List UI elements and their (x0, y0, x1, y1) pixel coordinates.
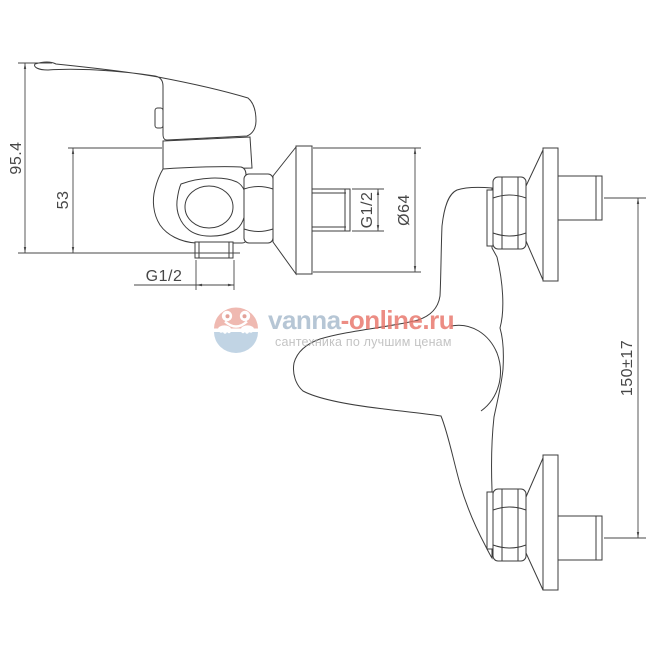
side-escutcheon (273, 146, 312, 274)
front-top-connection (487, 148, 602, 281)
side-view (35, 62, 350, 274)
side-wall-pipe (312, 189, 350, 231)
faucet-technical-drawing-page: vanna-online.ru сантехника по лучшим цен… (0, 0, 650, 650)
watermark: vanna-online.ru сантехника по лучшим цен… (213, 307, 454, 354)
brand-primary: vanna (268, 305, 341, 335)
side-connection-nut (244, 174, 273, 243)
cartridge-body (163, 137, 252, 170)
mixer-body-front (293, 187, 503, 558)
handle-button (155, 108, 163, 128)
dim-body-height: 53 (55, 191, 72, 210)
brand-tagline: сантехника по лучшим ценам (268, 335, 454, 349)
dim-flange-diameter: Ø64 (396, 194, 413, 226)
dim-inlet-thread: G1/2 (359, 192, 376, 229)
brand-name: vanna-online.ru (268, 307, 454, 334)
frog-logo-icon (213, 307, 259, 354)
body-inner-oval (185, 186, 233, 228)
dim-outlet-thread: G1/2 (146, 268, 183, 285)
dim-centers-distance: 150±17 (619, 340, 636, 396)
front-bottom-connection (487, 455, 602, 590)
watermark-text: vanna-online.ru сантехника по лучшим цен… (268, 307, 454, 354)
handle-side (35, 62, 256, 140)
brand-secondary: -online.ru (341, 305, 454, 335)
dim-total-height: 95.4 (8, 141, 25, 174)
outlet-pipe (195, 242, 233, 258)
